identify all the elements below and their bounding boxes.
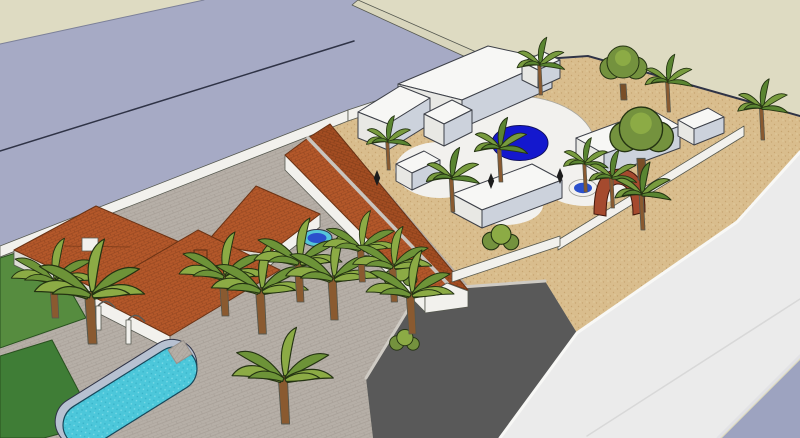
terrace-spa-water [574, 183, 592, 193]
model-viewport[interactable] [0, 0, 800, 438]
veranda-column [96, 306, 101, 330]
veranda-column [126, 320, 131, 344]
